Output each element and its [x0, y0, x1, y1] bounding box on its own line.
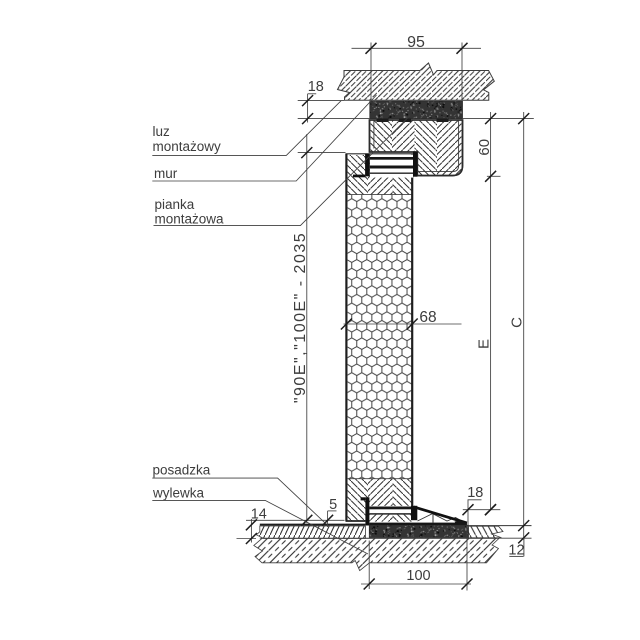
svg-text:mur: mur [154, 166, 178, 181]
svg-text:luz: luz [153, 124, 171, 139]
svg-text:14: 14 [251, 507, 267, 523]
svg-text:18: 18 [467, 485, 483, 501]
svg-text:18: 18 [308, 79, 324, 95]
svg-text:C: C [509, 317, 526, 328]
svg-text:posadzka: posadzka [153, 462, 211, 477]
svg-text:60: 60 [476, 139, 493, 156]
svg-text:68: 68 [419, 309, 436, 326]
svg-text:montażowy: montażowy [153, 139, 222, 154]
svg-text:"90E","100E" - 2035: "90E","100E" - 2035 [292, 232, 309, 403]
svg-text:wylewka: wylewka [152, 485, 205, 500]
svg-text:E: E [475, 339, 492, 349]
svg-text:95: 95 [407, 34, 425, 51]
svg-text:5: 5 [329, 497, 337, 513]
svg-text:montażowa: montażowa [155, 212, 225, 227]
svg-text:pianka: pianka [155, 197, 195, 212]
svg-text:100: 100 [406, 568, 430, 584]
